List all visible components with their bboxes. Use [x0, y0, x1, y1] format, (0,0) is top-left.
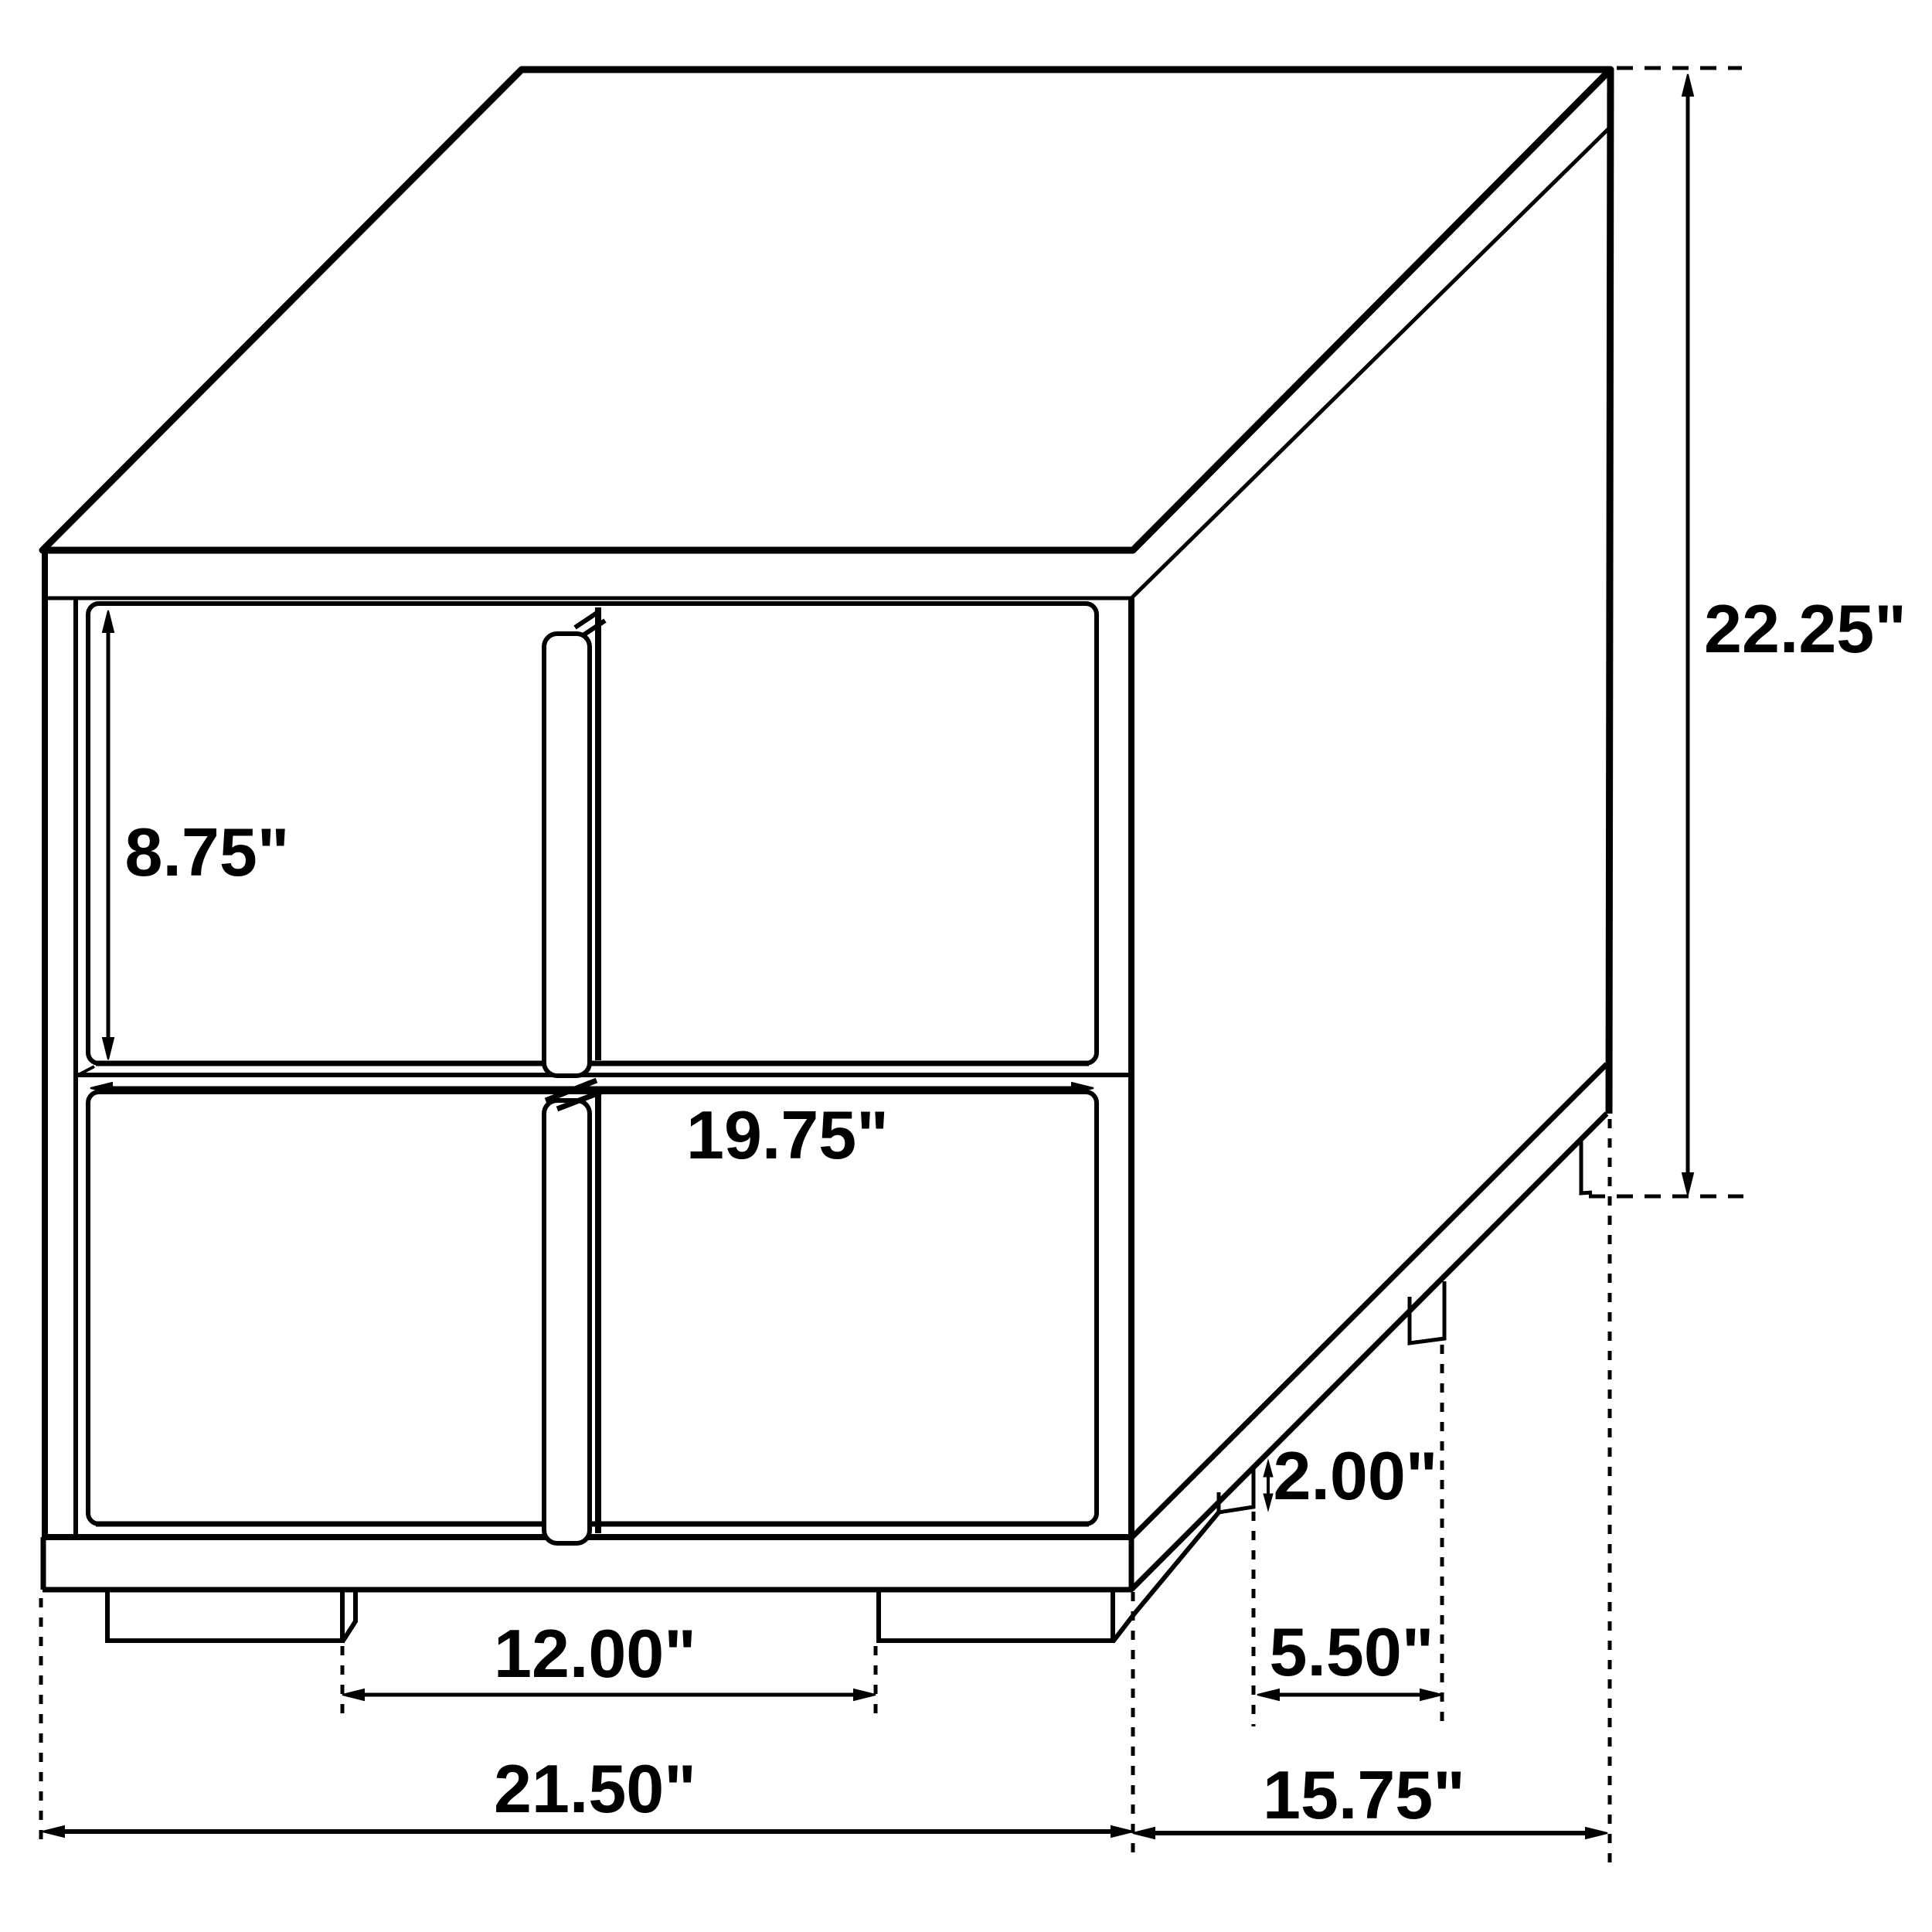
- svg-text:8.75": 8.75": [125, 814, 290, 890]
- svg-text:15.75": 15.75": [1263, 1757, 1465, 1833]
- svg-text:2.00": 2.00": [1274, 1437, 1438, 1514]
- svg-text:22.25": 22.25": [1704, 590, 1906, 667]
- svg-text:21.50": 21.50": [494, 1750, 696, 1827]
- svg-text:12.00": 12.00": [494, 1615, 696, 1692]
- svg-text:19.75": 19.75": [686, 1097, 889, 1173]
- svg-text:5.50": 5.50": [1270, 1614, 1434, 1690]
